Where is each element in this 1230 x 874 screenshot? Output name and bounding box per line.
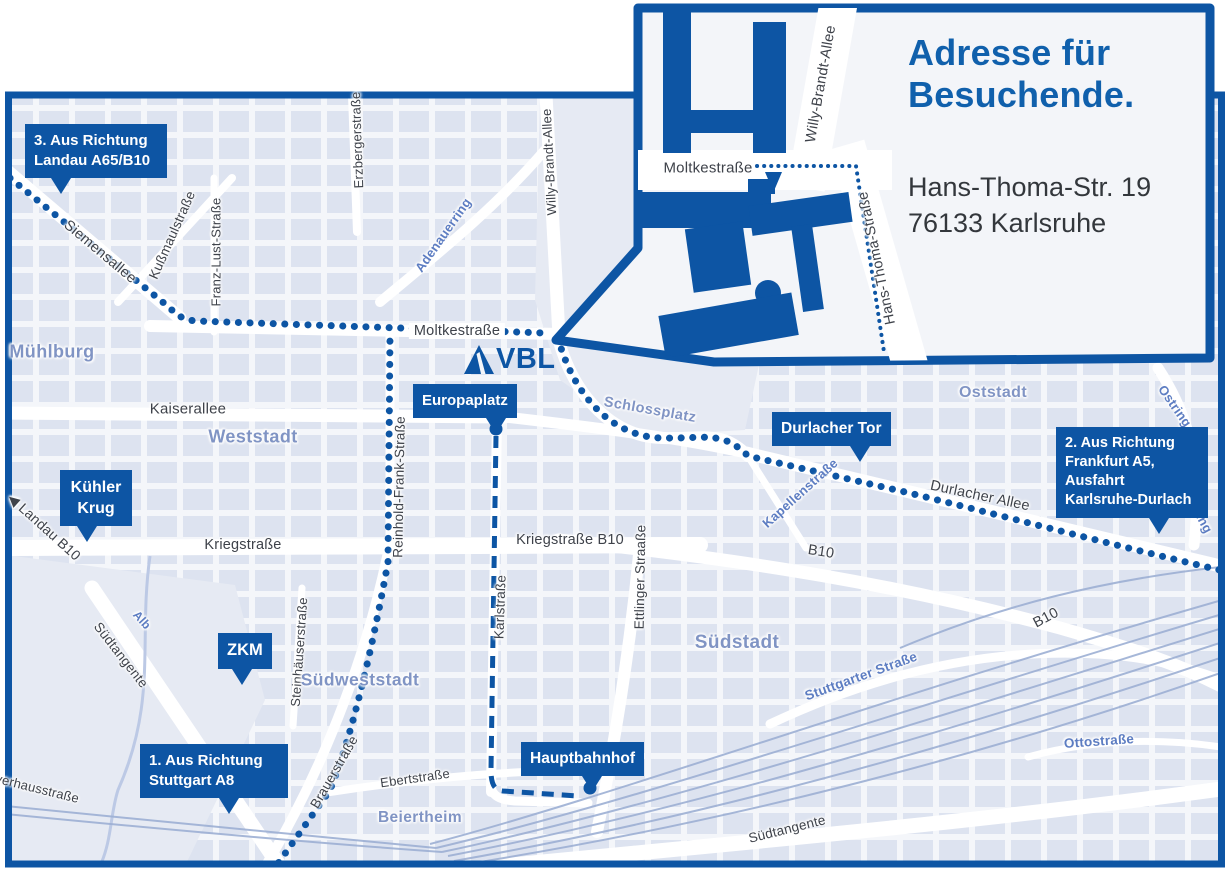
europaplatz-dot (490, 423, 503, 436)
inset-address-line1: Hans-Thoma-Str. 19 (908, 170, 1151, 206)
vbl-triangle-icon (464, 345, 494, 374)
vbl-logo: VBL (464, 345, 556, 374)
inset-title-line2: Besuchende. (908, 74, 1134, 116)
inset-title: Adresse für Besuchende. (908, 32, 1134, 117)
vbl-logo-text: VBL (496, 345, 556, 374)
inset-address: Hans-Thoma-Str. 19 76133 Karlsruhe (908, 170, 1151, 241)
inset-address-line2: 76133 Karlsruhe (908, 206, 1151, 242)
map-canvas (0, 0, 1230, 874)
inset-title-line1: Adresse für (908, 32, 1134, 74)
vbl-directions-map: SiemensalleeKußmaulstraßeFranz-Lust-Stra… (0, 0, 1230, 874)
hauptbahnhof-dot (584, 782, 597, 795)
